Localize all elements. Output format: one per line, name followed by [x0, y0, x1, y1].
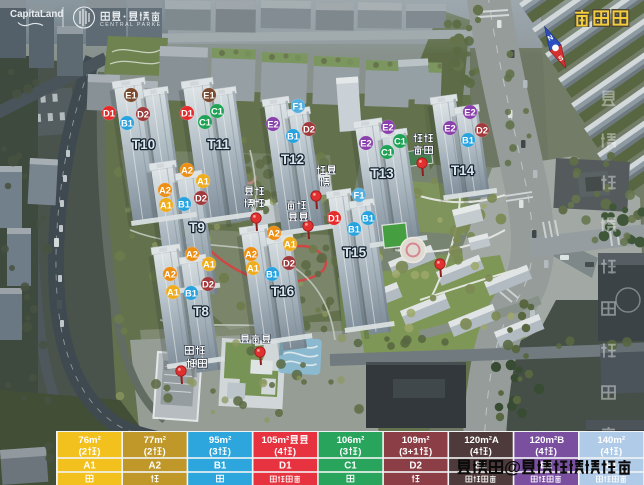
svg-text:120m²A: 120m²A [464, 435, 499, 446]
svg-text:(4: (4 [470, 447, 479, 458]
svg-text:A1: A1 [167, 286, 179, 297]
svg-text:C1: C1 [394, 135, 406, 146]
svg-text:A2: A2 [186, 248, 198, 259]
svg-text:CapitaLand: CapitaLand [10, 9, 63, 20]
svg-text:E1: E1 [203, 89, 214, 100]
svg-text:E2: E2 [360, 137, 371, 148]
svg-text:@: @ [504, 457, 521, 477]
svg-text:(3: (3 [209, 447, 218, 458]
svg-text:): ) [554, 447, 557, 458]
svg-text:A2: A2 [164, 268, 176, 279]
svg-text:T13: T13 [370, 166, 394, 181]
svg-text:B1: B1 [178, 198, 190, 209]
svg-text:B1: B1 [185, 287, 197, 298]
svg-text:): ) [358, 447, 361, 458]
svg-text:C1: C1 [199, 116, 211, 127]
svg-text:A1: A1 [203, 258, 215, 269]
svg-text:): ) [228, 447, 231, 458]
svg-text:D2: D2 [476, 124, 488, 135]
svg-text:B1: B1 [214, 460, 227, 471]
svg-text:D2: D2 [409, 460, 422, 471]
svg-text:E1: E1 [125, 89, 136, 100]
svg-text:T12: T12 [281, 152, 304, 167]
svg-text:D2: D2 [195, 192, 207, 203]
svg-text:D1: D1 [328, 212, 340, 223]
svg-text:F1: F1 [354, 189, 365, 200]
svg-text:E2: E2 [444, 122, 455, 133]
svg-text:A2: A2 [268, 227, 280, 238]
svg-text:A1: A1 [284, 238, 296, 249]
svg-text:(4: (4 [274, 447, 283, 458]
svg-text:(2: (2 [144, 447, 153, 458]
svg-text:E2: E2 [267, 118, 278, 129]
svg-text:A2: A2 [149, 460, 162, 471]
svg-text:D2: D2 [303, 123, 315, 134]
svg-text:F1: F1 [293, 100, 304, 111]
svg-text:): ) [163, 447, 166, 458]
svg-text:(4: (4 [535, 447, 544, 458]
svg-text:D1: D1 [103, 107, 115, 118]
svg-text:B1: B1 [121, 117, 133, 128]
svg-text:C1: C1 [344, 460, 357, 471]
svg-text:C1: C1 [211, 105, 223, 116]
svg-text:D1: D1 [181, 107, 193, 118]
svg-text:B1: B1 [266, 268, 278, 279]
svg-text:): ) [619, 447, 622, 458]
svg-text:T10: T10 [132, 137, 155, 152]
svg-text:95m²: 95m² [209, 435, 231, 446]
svg-text:D2: D2 [283, 257, 295, 268]
svg-text:D2: D2 [202, 278, 214, 289]
svg-text:D1: D1 [279, 460, 292, 471]
svg-text:A2: A2 [159, 184, 171, 195]
svg-text:A2: A2 [245, 248, 257, 259]
svg-text:): ) [293, 447, 296, 458]
svg-text:T9: T9 [189, 220, 205, 235]
svg-text:E2: E2 [382, 121, 393, 132]
svg-text:B1: B1 [362, 212, 374, 223]
svg-text:105m²: 105m² [262, 435, 290, 446]
svg-text:(3: (3 [340, 447, 349, 458]
svg-text:T11: T11 [207, 137, 230, 152]
svg-text:C1: C1 [381, 146, 393, 157]
svg-text:(3+1: (3+1 [399, 447, 419, 458]
svg-text:T15: T15 [343, 245, 367, 260]
svg-text:106m²: 106m² [337, 435, 365, 446]
svg-text:E2: E2 [464, 106, 475, 117]
svg-text:B1: B1 [462, 134, 474, 145]
svg-text:): ) [429, 447, 432, 458]
svg-text:B1: B1 [348, 223, 360, 234]
svg-text:T8: T8 [193, 304, 209, 319]
svg-text:): ) [97, 447, 100, 458]
svg-text:T16: T16 [271, 284, 295, 299]
svg-text:A1: A1 [83, 460, 96, 471]
svg-text:A2: A2 [181, 164, 193, 175]
svg-text:T14: T14 [451, 163, 475, 178]
svg-text:77m²: 77m² [144, 435, 166, 446]
svg-text:A1: A1 [247, 262, 259, 273]
svg-text:109m²: 109m² [402, 435, 430, 446]
svg-text:): ) [489, 447, 492, 458]
svg-text:D2: D2 [137, 108, 149, 119]
svg-text:A1: A1 [197, 175, 209, 186]
svg-text:(4: (4 [600, 447, 609, 458]
svg-text:76m²: 76m² [78, 435, 100, 446]
svg-text:CENTRAL PARKE: CENTRAL PARKE [100, 22, 162, 28]
svg-text:140m²: 140m² [597, 435, 625, 446]
svg-text:A1: A1 [160, 199, 172, 210]
svg-text:(2: (2 [79, 447, 88, 458]
svg-text:B1: B1 [287, 130, 299, 141]
svg-text:120m²B: 120m²B [530, 435, 565, 446]
